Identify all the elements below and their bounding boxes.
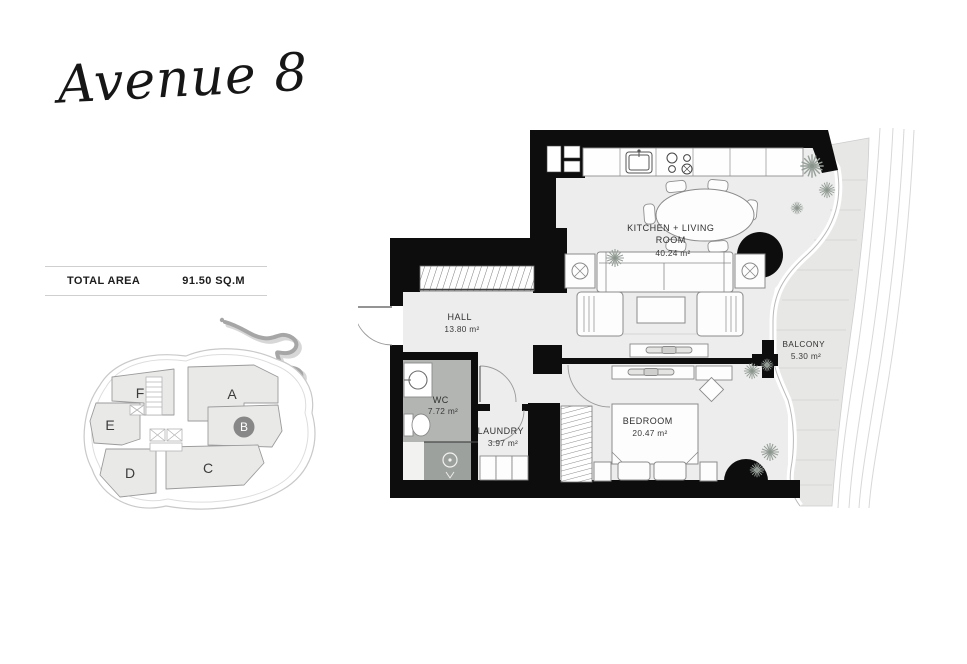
armchair-right xyxy=(697,292,743,336)
brand-logo: Avenue 8 xyxy=(56,40,350,139)
tv-console-living xyxy=(630,344,708,357)
unit-D-label: D xyxy=(125,465,135,481)
floor-plan: KITCHEN + LIVING ROOM 40.24 m² HALL 13.8… xyxy=(358,110,967,512)
side-table-right xyxy=(735,254,765,288)
unit-C-label: C xyxy=(203,460,213,476)
room-label-hall: HALL 13.80 m² xyxy=(444,307,479,334)
pillow xyxy=(654,462,686,480)
laundry-cabinets xyxy=(480,456,528,480)
total-area-value: 91.50 SQ.M xyxy=(182,275,245,287)
sink-icon xyxy=(626,149,652,173)
total-area-label: TOTAL AREA xyxy=(67,275,140,287)
hall-wardrobe-hatch xyxy=(420,266,534,291)
toilet-icon xyxy=(404,414,430,436)
unit-E-label: E xyxy=(105,417,114,433)
armchair-left xyxy=(577,292,623,336)
nightstand xyxy=(594,462,611,481)
bedroom-wardrobe-hatch xyxy=(561,406,592,482)
total-area-bar: TOTAL AREA 91.50 SQ.M xyxy=(45,266,267,296)
key-plan: F A E B D C xyxy=(50,305,320,520)
wc-side-strip xyxy=(403,442,424,482)
unit-A-label: A xyxy=(227,386,237,402)
floorplan-page: Avenue 8 TOTAL AREA 91.50 SQ.M xyxy=(0,0,967,664)
washbasin-icon xyxy=(404,363,432,397)
tv-console-bedroom xyxy=(612,366,694,379)
side-table-left xyxy=(565,254,595,288)
unit-B-label: B xyxy=(240,420,248,434)
kitchen-counter xyxy=(583,148,803,176)
pillow xyxy=(618,462,650,480)
dining-table xyxy=(656,189,754,241)
nightstand xyxy=(700,462,717,481)
entry-door-arc xyxy=(358,307,392,345)
coffee-table xyxy=(637,297,685,323)
unit-F-label: F xyxy=(136,385,145,401)
